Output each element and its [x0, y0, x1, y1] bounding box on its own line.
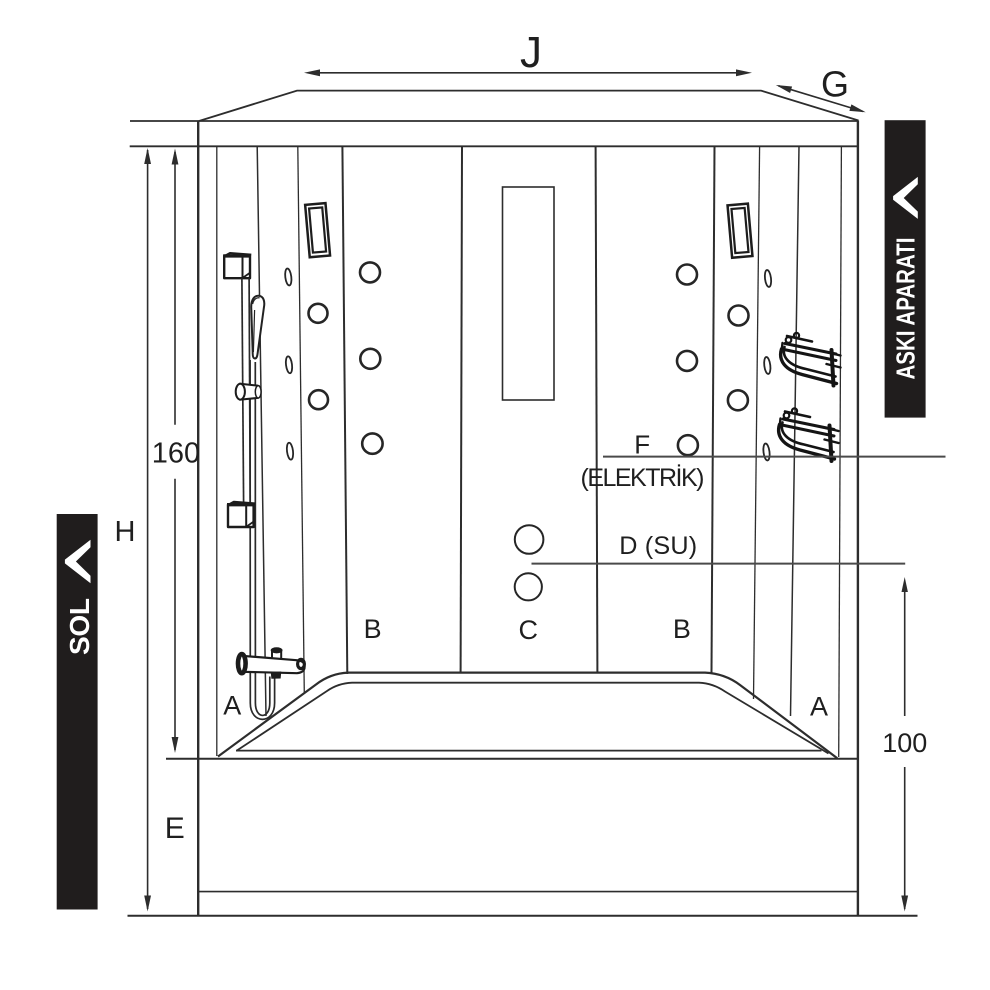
svg-text:G: G — [821, 64, 849, 105]
svg-text:A: A — [223, 691, 241, 721]
svg-text:100: 100 — [882, 728, 927, 758]
svg-text:F: F — [634, 430, 650, 460]
svg-text:160: 160 — [152, 438, 200, 470]
svg-text:B: B — [673, 614, 691, 644]
svg-text:C: C — [519, 615, 539, 645]
svg-text:B: B — [364, 614, 382, 644]
svg-text:ASKI APARATI: ASKI APARATI — [891, 238, 921, 380]
svg-text:SOL: SOL — [64, 598, 95, 655]
svg-text:E: E — [165, 812, 185, 845]
svg-text:H: H — [115, 516, 136, 548]
svg-text:A: A — [810, 692, 828, 722]
svg-text:D (SU): D (SU) — [619, 532, 697, 560]
svg-text:(ELEKTRİK): (ELEKTRİK) — [581, 463, 705, 492]
svg-text:J: J — [520, 28, 542, 77]
